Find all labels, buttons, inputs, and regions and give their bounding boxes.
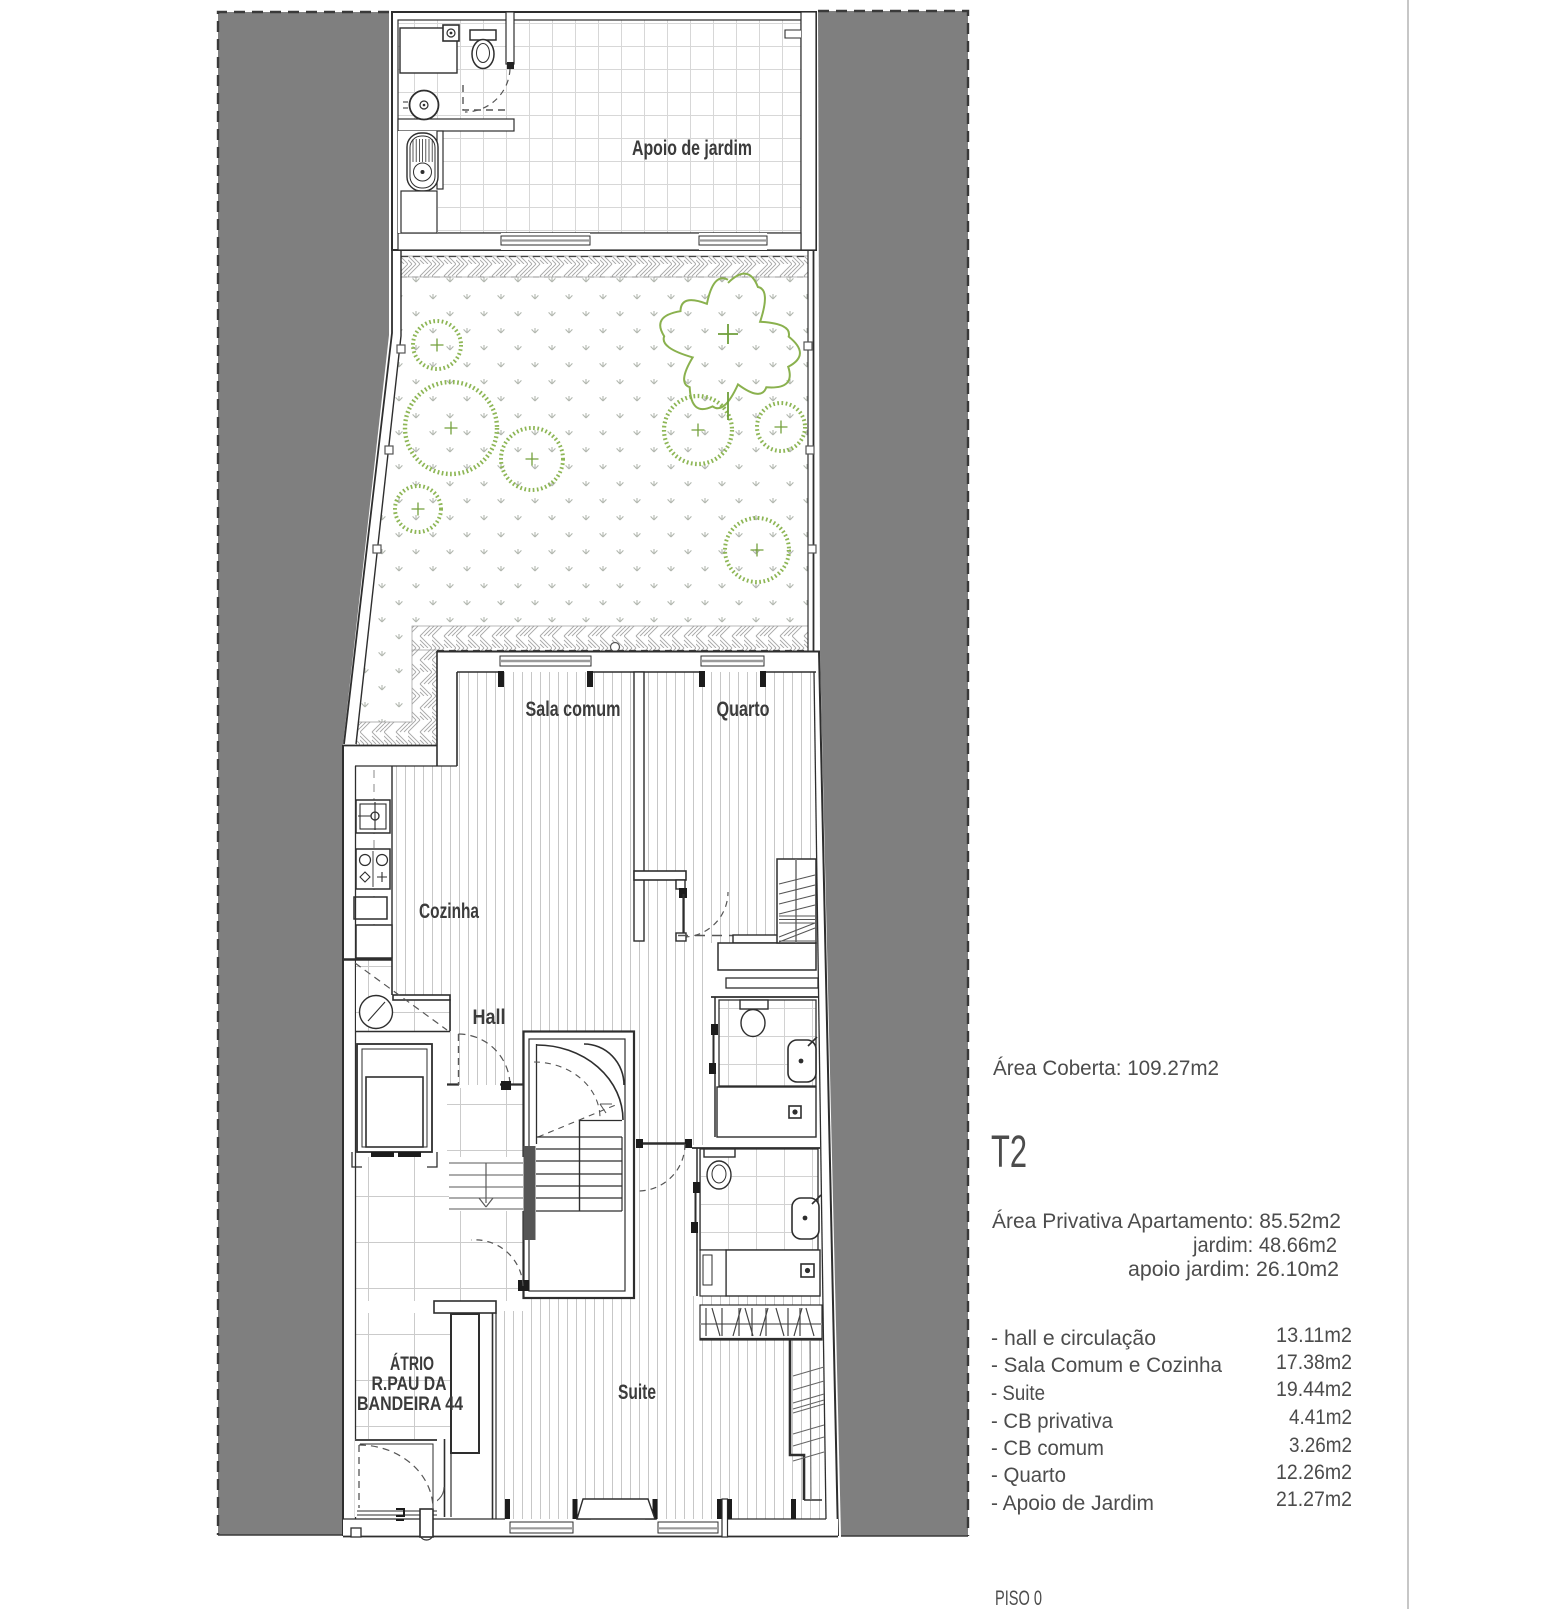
svg-text:jardim: 48.66m2: jardim: 48.66m2: [1192, 1233, 1337, 1257]
svg-text:PISO 0: PISO 0: [995, 1587, 1042, 1609]
svg-text:Quarto: Quarto: [717, 697, 770, 721]
svg-text:Suite: Suite: [618, 1381, 656, 1404]
svg-text:BANDEIRA 44: BANDEIRA 44: [357, 1394, 463, 1415]
svg-text:Cozinha: Cozinha: [419, 900, 479, 923]
svg-text:- Suite: - Suite: [991, 1381, 1045, 1405]
svg-text:13.11m2: 13.11m2: [1276, 1323, 1352, 1347]
svg-text:17.38m2: 17.38m2: [1276, 1350, 1352, 1374]
svg-text:19.44m2: 19.44m2: [1276, 1377, 1352, 1401]
svg-text:T2: T2: [991, 1126, 1027, 1177]
svg-text:- hall e circulação: - hall e circulação: [991, 1326, 1156, 1350]
svg-text:- Sala Comum e Cozinha: - Sala Comum e Cozinha: [991, 1353, 1222, 1377]
svg-text:Hall: Hall: [473, 1006, 506, 1029]
svg-text:Apoio de jardim: Apoio de jardim: [632, 136, 752, 160]
svg-text:12.26m2: 12.26m2: [1276, 1460, 1352, 1484]
svg-text:3.26m2: 3.26m2: [1289, 1433, 1352, 1457]
svg-text:Área Coberta: 109.27m2: Área Coberta: 109.27m2: [993, 1055, 1219, 1080]
svg-text:Sala comum: Sala comum: [526, 697, 621, 721]
svg-text:- Apoio de Jardim: - Apoio de Jardim: [991, 1491, 1154, 1515]
svg-text:- Quarto: - Quarto: [991, 1463, 1066, 1487]
svg-text:4.41m2: 4.41m2: [1289, 1405, 1352, 1429]
svg-text:R.PAU DA: R.PAU DA: [372, 1374, 447, 1395]
svg-text:ÁTRIO: ÁTRIO: [390, 1353, 434, 1375]
svg-text:- CB privativa: - CB privativa: [991, 1409, 1113, 1433]
svg-text:21.27m2: 21.27m2: [1276, 1487, 1352, 1511]
svg-text:- CB comum: - CB comum: [991, 1436, 1104, 1460]
svg-text:Área Privativa Apartamento: 85: Área Privativa Apartamento: 85.52m2: [992, 1208, 1341, 1233]
svg-text:apoio jardim: 26.10m2: apoio jardim: 26.10m2: [1128, 1257, 1339, 1281]
